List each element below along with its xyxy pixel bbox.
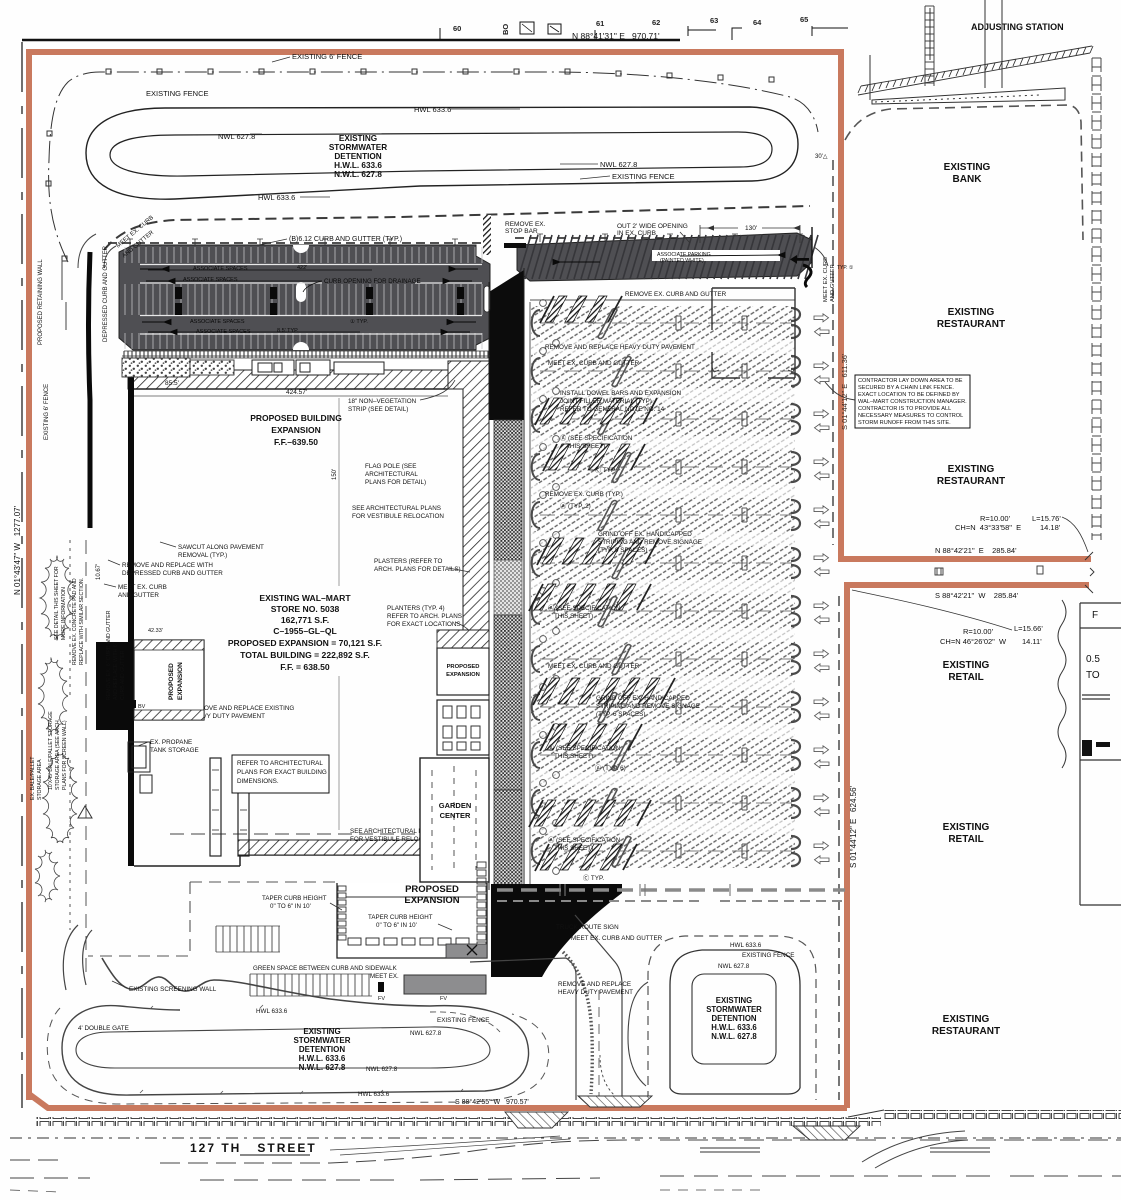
svg-text:HWL 633.6: HWL 633.6 (256, 1008, 288, 1015)
svg-text:F.F. = 638.50: F.F. = 638.50 (280, 662, 330, 672)
svg-text:PROPOSED EXPANSION = 70,121 S.: PROPOSED EXPANSION = 70,121 S.F. (228, 638, 382, 648)
svg-text:CENTER: CENTER (440, 811, 471, 820)
svg-text:PROPOSED: PROPOSED (405, 884, 459, 895)
svg-text:TANK STORAGE: TANK STORAGE (150, 747, 199, 754)
svg-text:DETENTION: DETENTION (334, 152, 381, 161)
svg-text:ASSOCIATE SPACES: ASSOCIATE SPACES (196, 329, 251, 335)
svg-text:65: 65 (800, 15, 808, 24)
svg-text:TYP. ①: TYP. ① (837, 265, 854, 271)
svg-text:MEET EX. CURB AND GUTTER: MEET EX. CURB AND GUTTER (571, 935, 663, 942)
svg-text:EXISTING: EXISTING (944, 162, 991, 173)
svg-text:THIS SHEET): THIS SHEET) (566, 443, 605, 450)
svg-text:61: 61 (596, 19, 604, 28)
svg-text:162,771 S.F.: 162,771 S.F. (281, 615, 329, 625)
svg-text:DETENTION: DETENTION (299, 1045, 345, 1054)
svg-text:EXPANSION: EXPANSION (177, 662, 184, 700)
svg-text:DEPRESSED CURB AND GUTTER: DEPRESSED CURB AND GUTTER (122, 570, 223, 577)
svg-text:422': 422' (297, 265, 307, 271)
svg-text:TOTAL BUILDING = 222,892 S.F.: TOTAL BUILDING = 222,892 S.F. (240, 650, 370, 660)
svg-text:FOR EXACT LOCATIONS: FOR EXACT LOCATIONS (387, 621, 461, 628)
svg-text:GARDEN: GARDEN (439, 801, 472, 810)
svg-text:CH=N 46°26'02" W: CH=N 46°26'02" W (940, 637, 1007, 646)
svg-text:EXISTING FENCE: EXISTING FENCE (146, 89, 209, 98)
svg-text:EXISTING: EXISTING (948, 307, 995, 318)
svg-text:Ⓐ (SEE SPECIFICATION: Ⓐ (SEE SPECIFICATION (560, 434, 633, 442)
svg-text:18" NON–VEGETATION: 18" NON–VEGETATION (348, 398, 417, 405)
svg-text:424.57': 424.57' (286, 389, 307, 396)
svg-text:MEET EX. CURB: MEET EX. CURB (823, 257, 829, 302)
svg-text:(TYP. 6 SPACES): (TYP. 6 SPACES) (596, 711, 645, 718)
svg-text:64: 64 (753, 18, 762, 27)
svg-text:BANK: BANK (953, 174, 983, 185)
svg-text:ASSOCIATE SPACES: ASSOCIATE SPACES (193, 266, 248, 272)
svg-text:IN EX. CURB: IN EX. CURB (617, 230, 656, 237)
svg-text:4' DOUBLE GATE: 4' DOUBLE GATE (78, 1025, 129, 1032)
svg-text:REMOVE AND REPLACE: REMOVE AND REPLACE (558, 981, 631, 988)
svg-text:REFER TO GENERAL NOTE NO. 14: REFER TO GENERAL NOTE NO. 14 (560, 406, 665, 413)
svg-text:PROPOSED: PROPOSED (447, 664, 480, 670)
svg-text:STORMWATER: STORMWATER (293, 1036, 350, 1045)
svg-text:MEET EX. CURB: MEET EX. CURB (118, 584, 167, 591)
svg-text:H.W.L. 633.6: H.W.L. 633.6 (299, 1054, 346, 1063)
svg-text:Ⓐ (SEE SPECIFICATION: Ⓐ (SEE SPECIFICATION (548, 604, 621, 612)
svg-text:TAPER CURB HEIGHT: TAPER CURB HEIGHT (368, 914, 433, 921)
svg-text:PLANS FOR DETAIL): PLANS FOR DETAIL) (365, 479, 426, 486)
svg-text:CONTRACTOR IS TO PROVIDE ALL: CONTRACTOR IS TO PROVIDE ALL (858, 406, 951, 412)
svg-text:DIMENSIONS.: DIMENSIONS. (237, 778, 279, 785)
svg-text:STOP BAR: STOP BAR (505, 228, 538, 235)
svg-text:EXPANSION: EXPANSION (271, 425, 320, 435)
svg-text:REMOVE AND REPLACE EXISTING: REMOVE AND REPLACE EXISTING (190, 705, 294, 712)
svg-text:HWL 633.6: HWL 633.6 (258, 193, 295, 202)
svg-text:N 01°43'47" W 1277.07': N 01°43'47" W 1277.07' (13, 505, 22, 595)
svg-text:SECURED BY A CHAIN LINK FENCE.: SECURED BY A CHAIN LINK FENCE. (858, 385, 954, 391)
svg-text:127 TH STREET: 127 TH STREET (190, 1141, 317, 1155)
svg-text:RETAIL: RETAIL (948, 672, 983, 683)
svg-text:30'△: 30'△ (815, 154, 828, 160)
svg-text:42.33': 42.33' (148, 628, 163, 634)
svg-text:EXISTING: EXISTING (948, 464, 995, 475)
svg-text:EXISTING WAL–MART: EXISTING WAL–MART (259, 593, 351, 603)
svg-text:H.W.L. 633.6: H.W.L. 633.6 (334, 161, 382, 170)
svg-text:DEPRESSED CURB AND GUTTER: DEPRESSED CURB AND GUTTER (103, 245, 109, 342)
svg-text:RESTAURANT: RESTAURANT (937, 476, 1005, 487)
svg-text:HWL 633.6: HWL 633.6 (730, 942, 762, 949)
svg-text:REMOVE EX.: REMOVE EX. (505, 221, 546, 228)
svg-text:① TYP.: ① TYP. (350, 318, 368, 325)
svg-text:FLAG POLE (SEE: FLAG POLE (SEE (365, 463, 416, 470)
svg-text:NWL 627.8: NWL 627.8 (218, 132, 255, 141)
svg-text:PLANS FOR EXACT BUILDING: PLANS FOR EXACT BUILDING (237, 769, 327, 776)
svg-text:STORAGE AREA: STORAGE AREA (37, 759, 43, 800)
svg-text:EXISTING FENCE: EXISTING FENCE (612, 172, 675, 181)
svg-text:EXPANSION: EXPANSION (404, 895, 459, 906)
svg-text:THIS SHEET): THIS SHEET) (554, 753, 593, 760)
svg-text:60: 60 (453, 24, 461, 33)
svg-text:CURB OPENING FOR DRAINAGE: CURB OPENING FOR DRAINAGE (324, 278, 421, 285)
svg-text:STORAGE AREA (SEE ARCH.: STORAGE AREA (SEE ARCH. (55, 719, 61, 790)
svg-text:ASSOCIATE SPACES: ASSOCIATE SPACES (183, 277, 238, 283)
svg-text:REMOVE EX. 6" CURB AND GUTTER: REMOVE EX. 6" CURB AND GUTTER (106, 610, 112, 700)
svg-text:NWL 627.8: NWL 627.8 (718, 963, 750, 970)
svg-text:Ⓐ (SEE SPECIFICATION: Ⓐ (SEE SPECIFICATION (548, 744, 621, 752)
svg-text:STRIP (SEE DETAIL): STRIP (SEE DETAIL) (348, 406, 408, 413)
svg-text:REMOVAL (TYP.): REMOVAL (TYP.) (178, 552, 227, 559)
svg-text:AND GUTTER: AND GUTTER (118, 592, 159, 599)
svg-text:ARCHITECTURAL: ARCHITECTURAL (365, 471, 418, 478)
svg-text:PROPOSED BUILDING: PROPOSED BUILDING (250, 413, 342, 423)
svg-text:L=15.76': L=15.76' (1032, 514, 1061, 523)
svg-text:JOINT FILLER MATERIAL (TYP): JOINT FILLER MATERIAL (TYP) (560, 398, 652, 405)
svg-text:MORE INFORMATION: MORE INFORMATION (61, 587, 67, 640)
svg-text:REPLACE WITH SIMILAR SECTION.: REPLACE WITH SIMILAR SECTION. (79, 578, 85, 665)
svg-text:REFER TO ARCHITECTURAL: REFER TO ARCHITECTURAL (237, 760, 323, 767)
svg-text:REMOVE EX. CURB (TYP.): REMOVE EX. CURB (TYP.) (545, 491, 623, 498)
svg-text:N.W.L. 627.8: N.W.L. 627.8 (299, 1063, 346, 1072)
svg-text:TRUCK ROUTE SIGN: TRUCK ROUTE SIGN (556, 924, 619, 931)
svg-text:AND REPLACE WITH 6": AND REPLACE WITH 6" (113, 642, 119, 700)
svg-text:62: 62 (652, 18, 660, 27)
svg-text:14.11': 14.11' (1022, 637, 1042, 646)
svg-text:HWL 633.6: HWL 633.6 (414, 105, 451, 114)
svg-text:(TYP. 9 SPACES): (TYP. 9 SPACES) (598, 547, 647, 554)
svg-text:0" TO 6" IN 10': 0" TO 6" IN 10' (376, 922, 417, 929)
svg-text:BV: BV (138, 704, 146, 710)
svg-text:EX. BALE/PALLET: EX. BALE/PALLET (30, 756, 36, 800)
svg-text:SEE DETAIL THIS SHEET FOR: SEE DETAIL THIS SHEET FOR (54, 566, 60, 640)
svg-text:L=15.66': L=15.66' (1014, 624, 1043, 633)
svg-text:EXISTING SCREENING WALL: EXISTING SCREENING WALL (129, 986, 217, 993)
svg-text:130': 130' (745, 225, 757, 232)
svg-text:0" TO 6" IN 10': 0" TO 6" IN 10' (270, 903, 311, 910)
svg-text:Ⓐ (TYP. 2): Ⓐ (TYP. 2) (560, 502, 591, 510)
svg-text:N 88°42'21" E 285.84': N 88°42'21" E 285.84' (935, 546, 1017, 555)
svg-text:NWL 627.8: NWL 627.8 (366, 1066, 398, 1073)
svg-text:CURB AND GUTTER: CURB AND GUTTER (120, 650, 126, 700)
svg-text:S 88°42'21" W 285.84': S 88°42'21" W 285.84' (935, 591, 1019, 600)
svg-text:8.5' TYP.: 8.5' TYP. (277, 328, 299, 334)
svg-text:PLANTERS (TYP. 4): PLANTERS (TYP. 4) (387, 605, 445, 612)
svg-text:STORM RUNOFF FROM THIS SITE.: STORM RUNOFF FROM THIS SITE. (858, 420, 951, 426)
svg-text:EXISTING: EXISTING (943, 822, 990, 833)
svg-text:INSTALL DOWEL BARS AND EXPANSI: INSTALL DOWEL BARS AND EXPANSION (560, 390, 682, 397)
svg-text:RESTAURANT: RESTAURANT (932, 1026, 1000, 1037)
svg-text:CONTRACTOR LAY DOWN AREA TO BE: CONTRACTOR LAY DOWN AREA TO BE (858, 378, 963, 384)
svg-text:HWL 633.6: HWL 633.6 (358, 1091, 390, 1098)
svg-text:EXACT LOCATION TO BE DEFINED B: EXACT LOCATION TO BE DEFINED BY (858, 392, 960, 398)
svg-text:EXISTING FENCE: EXISTING FENCE (437, 1017, 489, 1024)
svg-text:THIS SHEET): THIS SHEET) (554, 613, 593, 620)
svg-text:H.W.L. 633.6: H.W.L. 633.6 (711, 1023, 757, 1032)
svg-text:CH=N 43°33'58" E: CH=N 43°33'58" E (955, 523, 1021, 532)
svg-text:RESTAURANT: RESTAURANT (937, 319, 1005, 330)
svg-text:FV: FV (440, 996, 447, 1002)
svg-text:STORE NO. 5038: STORE NO. 5038 (271, 604, 340, 614)
svg-text:0.5: 0.5 (1086, 654, 1100, 665)
svg-text:C–1955–GL–QL: C–1955–GL–QL (273, 626, 337, 636)
svg-text:EXISTING: EXISTING (943, 660, 990, 671)
svg-text:F.F.–639.50: F.F.–639.50 (274, 437, 318, 447)
svg-text:EXISTING: EXISTING (716, 996, 752, 1005)
svg-text:SAWCUT ALONG PAVEMENT: SAWCUT ALONG PAVEMENT (178, 544, 264, 551)
svg-text:THIS SHEET): THIS SHEET) (554, 845, 593, 852)
svg-text:HEAVY DUTY PAVEMENT: HEAVY DUTY PAVEMENT (558, 989, 633, 996)
svg-text:FV: FV (378, 996, 385, 1002)
svg-text:EXISTING: EXISTING (943, 1014, 990, 1025)
svg-text:GRIND OFF EX. HANDICAPPED: GRIND OFF EX. HANDICAPPED (596, 695, 690, 702)
svg-text:WAL–MART CONSTRUCTION MANAGER.: WAL–MART CONSTRUCTION MANAGER. (858, 399, 967, 405)
svg-text:ARCH. PLANS FOR DETAILS): ARCH. PLANS FOR DETAILS) (374, 566, 461, 573)
svg-text:R=10.00': R=10.00' (963, 627, 994, 636)
svg-text:STRIPING AND REMOVE SIGNAGE: STRIPING AND REMOVE SIGNAGE (598, 539, 702, 546)
svg-text:PROPOSED: PROPOSED (168, 663, 175, 700)
svg-text:EXISTING: EXISTING (339, 134, 377, 143)
svg-text:REFER TO ARCH. PLANS: REFER TO ARCH. PLANS (387, 613, 462, 620)
svg-text:FOR VESTIBULE RELOCATION: FOR VESTIBULE RELOCATION (352, 513, 444, 520)
svg-text:PLANS FOR SCREEN WALL): PLANS FOR SCREEN WALL) (62, 720, 68, 790)
svg-text:EX. PROPANE: EX. PROPANE (150, 739, 192, 746)
svg-text:PLASTERS (REFER TO: PLASTERS (REFER TO (374, 558, 442, 565)
svg-text:Ⓐ (SEE SPECIFICATION: Ⓐ (SEE SPECIFICATION (548, 836, 621, 844)
svg-text:N 88°41'31" E 970.71': N 88°41'31" E 970.71' (572, 31, 660, 41)
svg-text:STORMWATER: STORMWATER (329, 143, 387, 152)
svg-text:F: F (1092, 610, 1098, 621)
svg-text:EXISTING FENCE: EXISTING FENCE (742, 952, 794, 959)
svg-text:Ⓒ TYP.: Ⓒ TYP. (583, 874, 604, 882)
svg-text:10'X45' BALE/PALLET STORAGE: 10'X45' BALE/PALLET STORAGE (48, 711, 54, 790)
svg-text:(B)6.12 CURB AND GUTTER (TYP.): (B)6.12 CURB AND GUTTER (TYP.) (289, 236, 402, 243)
svg-text:N.W.L. 627.8: N.W.L. 627.8 (711, 1032, 757, 1041)
svg-text:10.67': 10.67' (96, 564, 102, 580)
svg-text:EXISTING 6' FENCE: EXISTING 6' FENCE (292, 52, 362, 61)
svg-text:Ⓐ (TYP. 6): Ⓐ (TYP. 6) (595, 764, 626, 772)
svg-text:DETENTION: DETENTION (711, 1014, 756, 1023)
svg-text:RETAIL: RETAIL (948, 834, 983, 845)
svg-text:MEET EX.: MEET EX. (370, 973, 399, 980)
svg-text:150': 150' (332, 469, 338, 480)
svg-text:R=10.00': R=10.00' (980, 514, 1011, 523)
svg-text:STRIPING AND REMOVE SIGNAGE: STRIPING AND REMOVE SIGNAGE (596, 703, 700, 710)
svg-text:(PAINTED WHITE): (PAINTED WHITE) (660, 258, 704, 264)
svg-text:14.18': 14.18' (1040, 523, 1061, 532)
svg-text:S 88°42'55" W 970.57': S 88°42'55" W 970.57' (455, 1098, 529, 1106)
svg-text:MEET EX. CURB AND GUTTER: MEET EX. CURB AND GUTTER (548, 663, 640, 670)
svg-text:63: 63 (710, 16, 718, 25)
svg-text:REMOVE EX. CONCRETE PAD AND: REMOVE EX. CONCRETE PAD AND (72, 578, 78, 665)
svg-text:TAPER CURB HEIGHT: TAPER CURB HEIGHT (262, 895, 327, 902)
svg-text:GRIND OFF EX. HANDICAPPED: GRIND OFF EX. HANDICAPPED (598, 531, 692, 538)
svg-text:EXISTING: EXISTING (303, 1027, 340, 1036)
svg-text:AND GUTTER: AND GUTTER (830, 264, 836, 302)
svg-text:Ⓒ TYP.: Ⓒ TYP. (595, 466, 616, 474)
svg-text:NWL 627.8: NWL 627.8 (600, 160, 637, 169)
svg-text:MEET EX. CURB AND GUTTER: MEET EX. CURB AND GUTTER (548, 360, 640, 367)
svg-text:ASSOCIATE SPACES: ASSOCIATE SPACES (190, 319, 245, 325)
svg-text:N.W.L. 627.8: N.W.L. 627.8 (334, 170, 382, 179)
svg-text:STORMWATER: STORMWATER (706, 1005, 762, 1014)
svg-text:OUT 2' WIDE OPENING: OUT 2' WIDE OPENING (617, 223, 688, 230)
svg-text:S 01°44'12" E 611.36': S 01°44'12" E 611.36' (840, 353, 849, 430)
svg-text:SEE ARCHITECTURAL PLANS: SEE ARCHITECTURAL PLANS (352, 505, 441, 512)
svg-text:EXISTING 6' FENCE: EXISTING 6' FENCE (44, 384, 50, 440)
svg-text:TO: TO (1086, 670, 1100, 681)
svg-text:PROPOSED RETAINING WALL: PROPOSED RETAINING WALL (38, 259, 44, 345)
svg-text:BO: BO (501, 24, 510, 35)
svg-text:REMOVE AND REPLACE WITH: REMOVE AND REPLACE WITH (122, 562, 213, 569)
svg-text:NWL 627.8: NWL 627.8 (410, 1030, 442, 1037)
svg-text:GREEN SPACE BETWEEN CURB AND S: GREEN SPACE BETWEEN CURB AND SIDEWALK (253, 965, 398, 972)
svg-text:S 01°44'12" E 624.56': S 01°44'12" E 624.56' (849, 785, 858, 868)
svg-text:85.5': 85.5' (165, 380, 179, 387)
svg-text:NECESSARY MEASURES TO CONTROL: NECESSARY MEASURES TO CONTROL (858, 413, 963, 419)
svg-text:EXPANSION: EXPANSION (446, 672, 480, 678)
svg-text:REMOVE AND REPLACE HEAVY DUT: REMOVE AND REPLACE HEAVY DUTY PAVEMENT (545, 344, 695, 351)
